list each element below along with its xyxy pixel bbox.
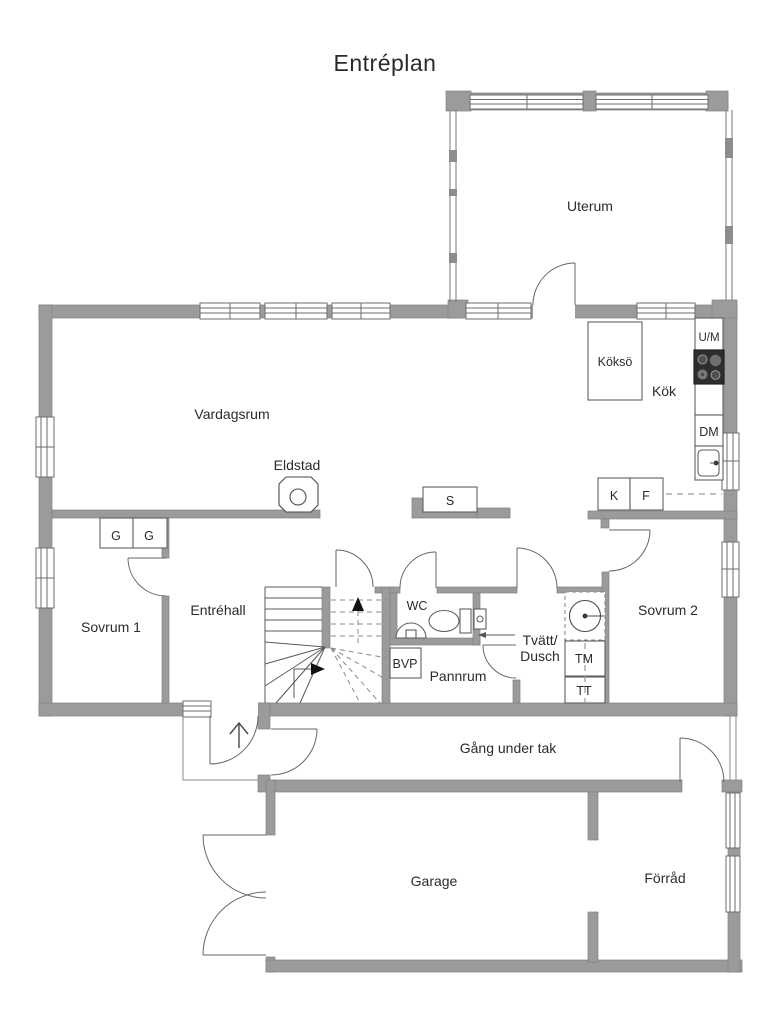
wall-garage-top <box>266 780 682 792</box>
door-wc <box>400 552 436 588</box>
entrance-arrow-icon <box>230 723 248 748</box>
wall-kitchen-south <box>588 511 737 519</box>
label-tm: TM <box>575 652 593 666</box>
label-entrehall: Entréhall <box>190 602 245 618</box>
wall-stair-stub <box>322 587 330 648</box>
window-forrad-1 <box>726 793 740 848</box>
label-pannrum: Pannrum <box>430 668 487 684</box>
wall-stair-east <box>382 587 390 703</box>
label-koksoe: Köksö <box>598 355 633 369</box>
wall-sovrum1-east-b <box>162 596 169 703</box>
wall-left <box>39 305 52 716</box>
wall-garage-bottom <box>266 960 742 972</box>
labels: Entréplan Uterum Vardagsrum Eldstad Köks… <box>81 50 720 889</box>
stairs-turn-arrow <box>311 663 325 675</box>
wall-bottom <box>39 703 737 716</box>
door-sovrum1 <box>128 558 166 596</box>
label-garderob-1: G <box>111 529 121 543</box>
uterum-corner-bl <box>448 300 468 318</box>
window-uterum-top-2 <box>596 95 708 109</box>
stairs-up-arrow <box>352 597 364 611</box>
uterum-mid-post <box>583 91 596 111</box>
label-forrad: Förråd <box>644 870 685 886</box>
window-forrad-2 <box>726 856 740 912</box>
label-tt: TT <box>576 684 592 698</box>
wall-chimney-step <box>477 508 510 518</box>
wall-right <box>724 305 737 716</box>
label-gang-under-tak: Gång under tak <box>460 740 558 756</box>
door-garage-north-leaf <box>203 835 266 898</box>
counter-box <box>695 384 723 415</box>
wall-gang-west-a <box>258 703 270 729</box>
label-bvp: BVP <box>392 657 417 671</box>
label-garderob-2: G <box>144 529 154 543</box>
door-entrance <box>210 716 258 764</box>
wall-pannrum-east <box>513 680 520 703</box>
label-sovrum1: Sovrum 1 <box>81 619 141 635</box>
window-kok-east <box>722 433 739 490</box>
opening-entrance-door <box>210 702 258 717</box>
floor-plan-canvas: Entréplan Uterum Vardagsrum Eldstad Köks… <box>0 0 780 1024</box>
window-vardagsrum-2 <box>265 303 327 319</box>
window-uterum-top-1 <box>470 95 583 109</box>
window-vardagsrum-1 <box>200 303 260 319</box>
label-frys: F <box>642 489 650 503</box>
window-vardagsrum-west <box>36 417 54 477</box>
door-tvatt <box>517 548 557 588</box>
wall-stub-kitchen <box>601 519 609 528</box>
wall-corridor-stub2 <box>437 587 517 593</box>
wall-mid-west <box>52 510 320 518</box>
uterum-corner-tr <box>706 91 728 111</box>
shower-icon <box>565 592 605 640</box>
label-vardagsrum: Vardagsrum <box>194 406 269 422</box>
door-hall-corridor <box>336 550 373 587</box>
toilet-icon <box>429 609 471 633</box>
door-uterum <box>533 263 575 305</box>
wall-garage-divider-a <box>588 792 598 840</box>
floor-plan-page: Entréplan Uterum Vardagsrum Eldstad Köks… <box>0 0 780 1024</box>
window-entrance-side <box>183 701 211 717</box>
label-sovrum2: Sovrum 2 <box>638 602 698 618</box>
label-dm: DM <box>699 425 718 439</box>
label-kok: Kök <box>652 383 677 399</box>
window-sovrum2-east <box>722 542 739 597</box>
label-skorsten: S <box>446 494 454 508</box>
tvatt-leader-arrow <box>478 632 515 638</box>
label-wc: WC <box>407 599 428 613</box>
label-tvatt-line2: Dusch <box>520 648 560 664</box>
stove-icon <box>694 350 724 384</box>
door-sovrum2 <box>609 530 650 571</box>
label-eldstad: Eldstad <box>274 457 321 473</box>
fireplace-icon <box>279 477 318 512</box>
label-garage: Garage <box>411 873 458 889</box>
label-tvatt-line1: Tvätt/ <box>522 632 557 648</box>
wc-sink-icon <box>396 623 426 638</box>
label-uterum: Uterum <box>567 198 613 214</box>
kitchen-sink-icon <box>695 446 723 480</box>
wall-wc-south <box>390 638 480 645</box>
wall-garage-divider-b <box>588 912 598 962</box>
door-forrad <box>680 738 724 782</box>
door-pannrum <box>483 645 516 678</box>
page-title: Entréplan <box>334 50 437 76</box>
uterum-corner-br <box>712 300 737 318</box>
door-gang-west <box>271 729 317 775</box>
opening-uterum-door <box>533 304 575 319</box>
window-sovrum1-west <box>36 548 54 608</box>
label-kyl: K <box>610 489 619 503</box>
uterum-corner-tl <box>446 91 471 111</box>
label-um: U/M <box>698 332 719 344</box>
window-house-uterum-1 <box>466 303 531 319</box>
window-vardagsrum-3 <box>332 303 390 319</box>
window-house-uterum-2 <box>637 303 695 319</box>
porch-outline <box>183 717 259 780</box>
wall-garage-left-a <box>266 780 275 835</box>
door-garage-south-leaf <box>203 892 266 955</box>
small-basin-icon <box>474 609 486 629</box>
wall-garage-top-block <box>722 780 742 792</box>
